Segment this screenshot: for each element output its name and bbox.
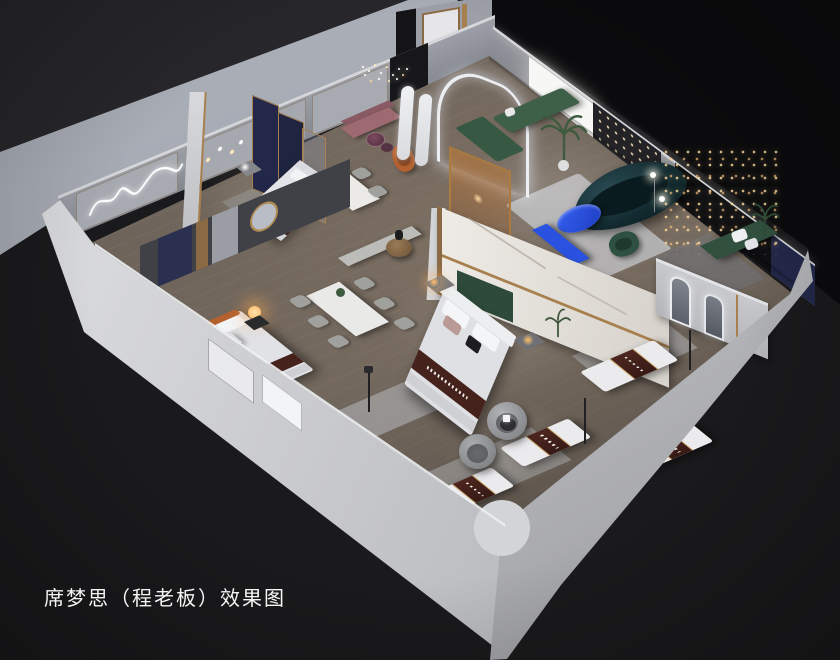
vignette — [0, 0, 840, 660]
caption: 席梦思（程老板）效果图 — [44, 582, 286, 611]
render-canvas: 席梦思（程老板）效果图 — [0, 0, 840, 660]
